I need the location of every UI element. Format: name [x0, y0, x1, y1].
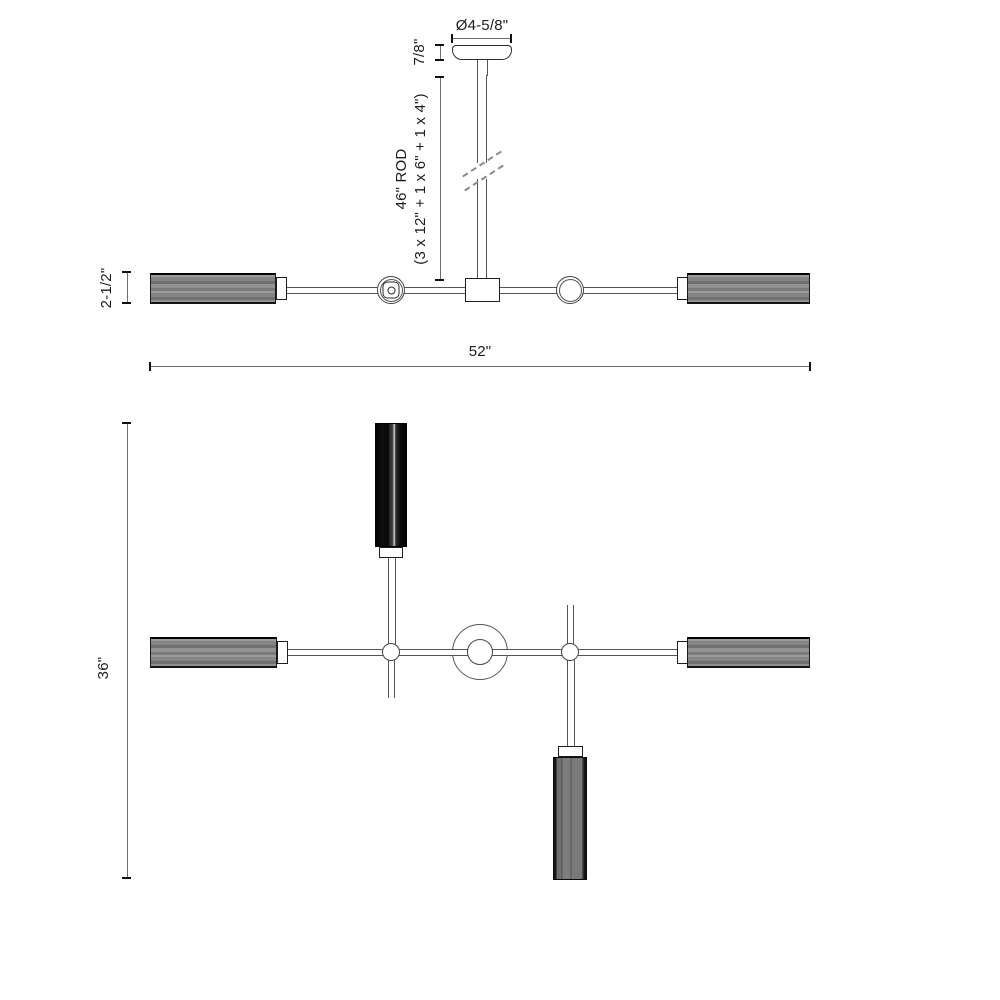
shade-height-dimension-line — [127, 272, 128, 303]
bottom-glass-shade-plan — [553, 757, 587, 880]
top-shade-socket-plan — [379, 547, 403, 558]
right-glass-shade-plan — [687, 637, 810, 668]
bottom-shade-socket-plan — [558, 746, 583, 757]
center-hub-plan — [467, 639, 493, 665]
right-joint-plan — [561, 643, 579, 661]
left-glass-shade-plan — [150, 637, 277, 668]
dimension-tick — [435, 59, 444, 61]
dimension-tick — [122, 877, 131, 879]
canopy-stem — [477, 60, 488, 76]
canopy-diameter-dimension-line — [452, 38, 512, 39]
ceiling-canopy — [452, 45, 512, 60]
rod-length-label-line2: (3 x 12" + 1 x 6" + 1 x 4") — [411, 55, 430, 303]
center-connector-block — [465, 278, 500, 302]
right-joint-stub-plan — [567, 605, 574, 644]
joint-pin — [387, 286, 395, 294]
canopy-height-dimension-line — [440, 45, 441, 60]
dimension-tick — [451, 34, 453, 43]
dimension-tick — [435, 279, 444, 281]
dimension-tick — [435, 44, 444, 46]
fixture-dimension-drawing: Ø4-5/8" 7/8" 46" ROD (3 x 12" + 1 x 6" +… — [0, 0, 1000, 1000]
overall-width-dimension-line — [150, 366, 810, 367]
bottom-arm-rod-plan — [567, 660, 575, 746]
front-arm-joint — [377, 276, 405, 304]
dimension-tick — [149, 362, 151, 371]
top-glass-shade-plan — [375, 423, 407, 547]
dimension-tick — [809, 362, 811, 371]
left-glass-shade — [150, 273, 276, 304]
overall-depth-label: 36" — [95, 649, 111, 687]
shade-height-label: 2-1/2" — [98, 265, 114, 311]
dimension-tick — [122, 302, 131, 304]
dimension-tick — [510, 34, 512, 43]
overall-depth-dimension-line — [127, 423, 128, 878]
rear-arm-joint — [556, 276, 584, 304]
rod-length-label: 46" ROD (3 x 12" + 1 x 6" + 1 x 4") — [392, 55, 432, 303]
left-joint-stub-plan — [388, 660, 395, 698]
rod-length-dimension-line — [440, 77, 441, 280]
left-shade-socket — [276, 277, 287, 300]
left-shade-socket-plan — [277, 641, 288, 664]
dimension-tick — [122, 422, 131, 424]
top-arm-rod-plan — [388, 558, 396, 645]
dimension-tick — [122, 271, 131, 273]
dimension-tick — [435, 76, 444, 78]
joint-hub — [383, 282, 400, 299]
rod-length-label-line1: 46" ROD — [392, 55, 411, 303]
overall-width-label: 52" — [380, 343, 580, 360]
canopy-diameter-label: Ø4-5/8" — [412, 17, 552, 34]
left-joint-plan — [382, 643, 400, 661]
right-glass-shade — [687, 273, 810, 304]
